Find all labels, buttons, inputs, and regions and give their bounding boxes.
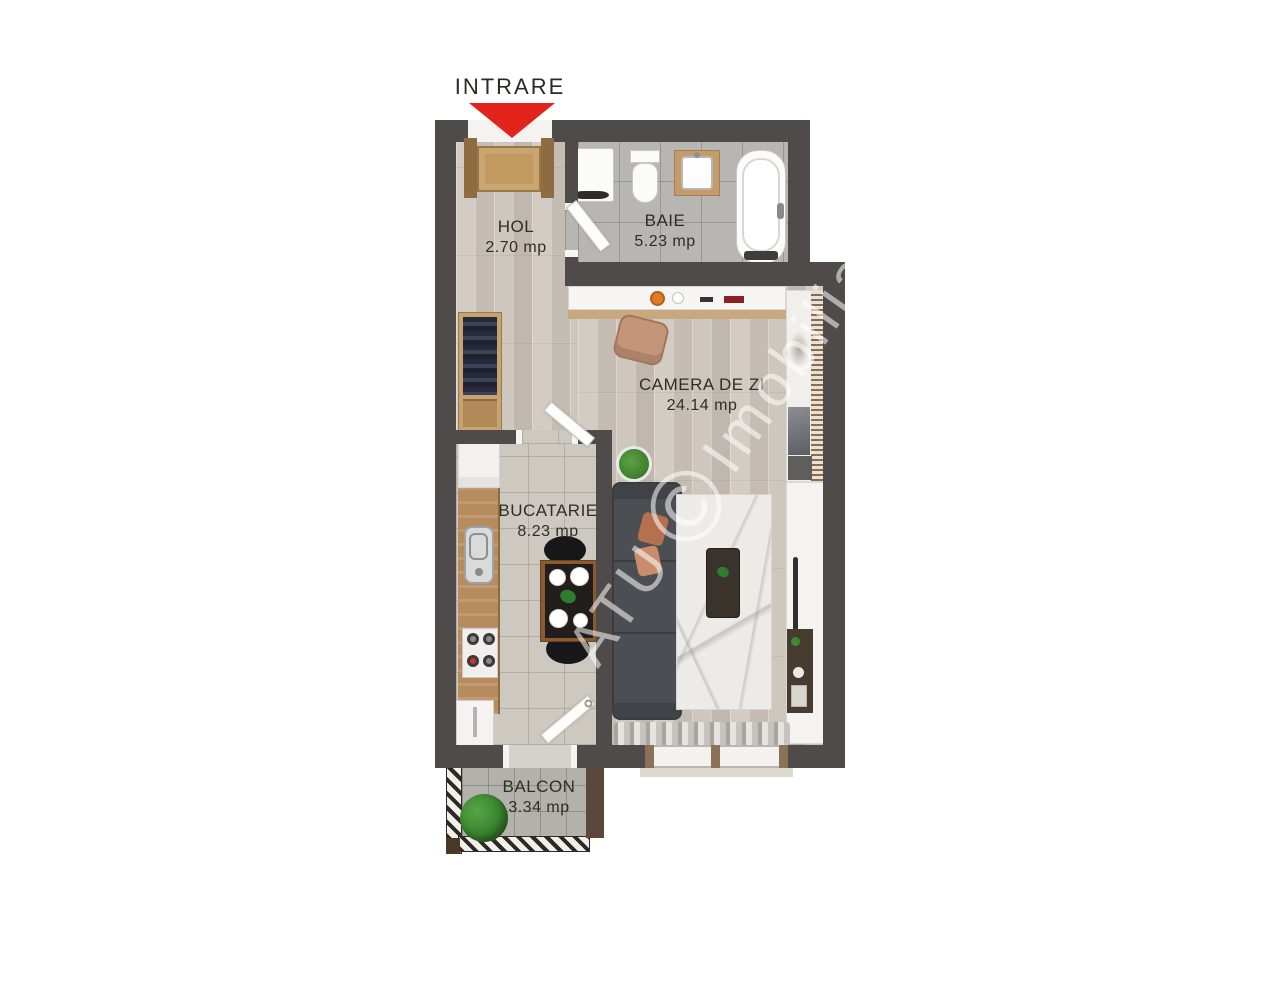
door-jamb (516, 430, 522, 444)
room-name: BALCON (503, 776, 576, 798)
tv-unit (786, 482, 826, 744)
hol-label: HOL 2.70 mp (456, 216, 576, 259)
tv-cabinet (787, 629, 813, 713)
toilet-tank (630, 150, 660, 163)
entrance-arrow-icon (469, 103, 555, 138)
balcony-door-gap (508, 745, 572, 768)
entrance-label: INTRARE (444, 74, 576, 100)
baie-label: BAIE 5.23 mp (605, 210, 725, 253)
washer-door-handle (573, 191, 609, 199)
bathtub (736, 150, 786, 264)
window-mullion (645, 745, 654, 768)
stove-burner (483, 655, 495, 667)
table-plant (715, 565, 730, 579)
wall-left (435, 120, 456, 768)
stove-burner (483, 633, 495, 645)
window-sill (640, 768, 793, 777)
room-area: 8.23 mp (517, 522, 578, 543)
room-name: BAIE (645, 210, 686, 232)
cabinet-frame (791, 685, 807, 707)
wall-bottom-right (788, 745, 845, 768)
wall-hall-kitchen-left (456, 430, 522, 444)
entrance-door (477, 146, 541, 192)
entrance-door-frame (541, 138, 554, 198)
wardrobe-shelf (463, 399, 497, 427)
room-name: HOL (498, 216, 534, 238)
window-mullion (711, 745, 720, 768)
cabinet-dish (793, 667, 804, 678)
stove (462, 628, 498, 678)
room-area: 2.70 mp (485, 238, 546, 259)
window-mullion (779, 745, 788, 768)
room-area: 5.23 mp (634, 232, 695, 253)
desk-item-orange (650, 291, 665, 306)
plate (549, 569, 566, 586)
bathtub-mat (744, 251, 778, 260)
balcony-corner-post (446, 838, 460, 854)
kitchen-faucet (475, 568, 483, 576)
hanging-clothes (463, 317, 497, 395)
floor-plan: INTRARE (0, 0, 1280, 1000)
bathtub-faucet (777, 203, 784, 219)
door-jamb (503, 745, 509, 768)
room-name: BUCATARIE (498, 500, 597, 522)
desk-item-dark (700, 297, 713, 302)
stove-burner (467, 655, 479, 667)
hall-wardrobe (458, 312, 502, 432)
fridge-handle (473, 707, 477, 737)
desk-wood-edge (568, 310, 786, 319)
vanity-sink (681, 156, 713, 190)
cabinet-plant (791, 637, 800, 646)
desk-item-red (724, 296, 744, 303)
wall-bottom-left (435, 745, 508, 768)
bath-vanity (674, 150, 720, 196)
bucatarie-label: BUCATARIE 8.23 mp (488, 500, 608, 543)
desk-item-cup (672, 292, 684, 304)
balcon-label: BALCON 3.34 mp (478, 776, 600, 819)
bathtub-basin (742, 158, 780, 252)
curtain (614, 722, 790, 746)
room-area: 3.34 mp (508, 798, 569, 819)
doormat-box (788, 456, 812, 480)
stove-burner (467, 633, 479, 645)
door-jamb (571, 745, 577, 768)
entrance-door-frame (464, 138, 477, 198)
wall-top-right (552, 120, 810, 142)
wall-bottom-mid (572, 745, 645, 768)
sink-basin (469, 533, 488, 560)
sink-faucet (694, 152, 700, 158)
fridge (456, 700, 494, 748)
sofa-armrest (614, 703, 680, 718)
toilet-bowl (632, 163, 658, 203)
